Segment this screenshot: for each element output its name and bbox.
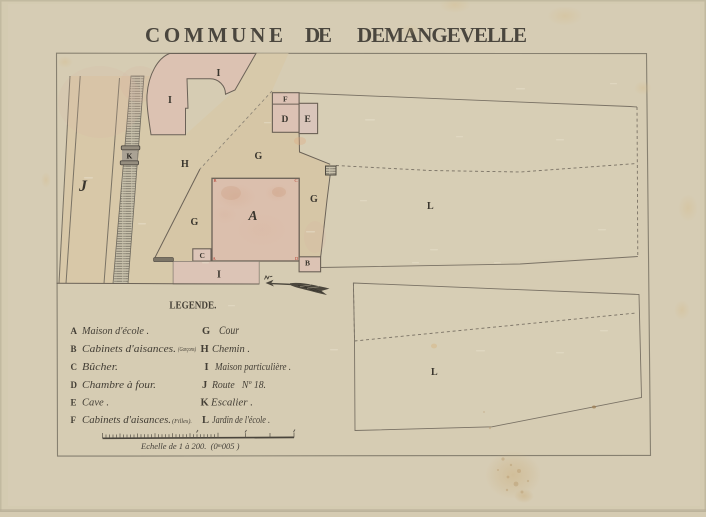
svg-text:K: K — [127, 152, 133, 161]
svg-text:L: L — [431, 367, 438, 378]
svg-text:DE: DE — [305, 23, 332, 47]
svg-text:(Garçons): (Garçons) — [178, 346, 196, 353]
svg-text:D: D — [282, 115, 289, 125]
svg-text:I: I — [168, 95, 172, 106]
svg-text:Cave .: Cave . — [82, 398, 109, 409]
svg-text:C: C — [200, 251, 205, 260]
svg-text:Bûcher.: Bûcher. — [82, 362, 118, 373]
svg-text:H: H — [201, 344, 209, 355]
svg-text:Cour: Cour — [219, 325, 239, 337]
svg-text:Echelle de 1 à 200. (0m005 ): Echelle de 1 à 200. (0m005 ) — [140, 441, 240, 451]
svg-text:L: L — [427, 201, 434, 212]
svg-text:Cabinets d'aisances.: Cabinets d'aisances. — [82, 344, 176, 355]
svg-text:G: G — [255, 151, 263, 162]
svg-text:G: G — [191, 217, 199, 228]
svg-text:C: C — [71, 362, 78, 372]
svg-text:E: E — [71, 398, 77, 408]
svg-text:Route Nº 18.: Route Nº 18. — [211, 380, 266, 391]
svg-text:H: H — [181, 159, 189, 170]
svg-text:G: G — [310, 194, 318, 205]
svg-text:Chemin .: Chemin . — [212, 344, 250, 355]
svg-text:Escalier .: Escalier . — [210, 398, 253, 409]
svg-text:F: F — [71, 415, 77, 425]
svg-text:COMMUNE: COMMUNE — [145, 23, 283, 47]
svg-text:A: A — [71, 326, 78, 336]
svg-text:Maison particulière .: Maison particulière . — [214, 362, 291, 373]
svg-text:Jardin de l'école .: Jardin de l'école . — [212, 415, 270, 426]
svg-text:Chambre à four.: Chambre à four. — [82, 380, 156, 391]
svg-text:L: L — [202, 415, 209, 426]
svg-text:DEMANGEVELLE: DEMANGEVELLE — [357, 23, 527, 47]
svg-text:J: J — [202, 380, 207, 391]
svg-text:I: I — [217, 68, 221, 79]
svg-text:B: B — [214, 178, 217, 183]
svg-text:B: B — [71, 344, 77, 354]
svg-text:I: I — [205, 362, 209, 373]
svg-text:E: E — [305, 115, 311, 125]
svg-text:C: C — [295, 178, 298, 183]
svg-text:LEGENDE.: LEGENDE. — [169, 300, 216, 311]
svg-text:Cabinets d'aisances.: Cabinets d'aisances. — [82, 415, 171, 426]
svg-text:Maison d'école .: Maison d'école . — [81, 326, 149, 337]
svg-text:I: I — [217, 270, 221, 281]
svg-text:G: G — [202, 326, 210, 337]
svg-text:D: D — [71, 380, 78, 390]
svg-text:F: F — [283, 95, 288, 104]
svg-text:B: B — [305, 259, 310, 268]
svg-text:J: J — [78, 178, 88, 195]
svg-text:K: K — [201, 398, 210, 409]
svg-text:A: A — [248, 208, 258, 223]
svg-text:(Filles).: (Filles). — [172, 418, 192, 425]
